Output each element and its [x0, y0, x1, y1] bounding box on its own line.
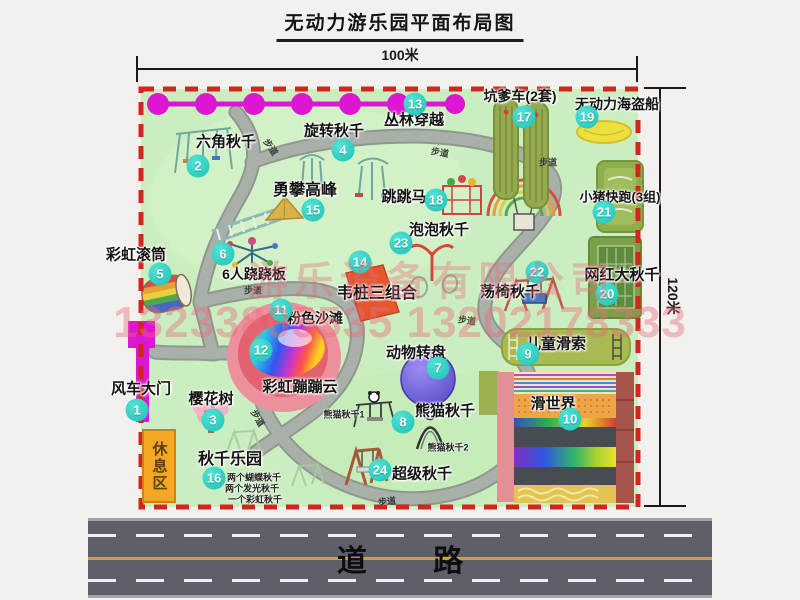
- road-label: 道 路: [337, 536, 463, 580]
- slide-world-icon: [479, 371, 634, 503]
- kids-zipline-icon: [502, 329, 630, 365]
- park-plan-page: 无动力游乐园平面布局图 100米 120米: [0, 0, 800, 600]
- big-swing-icon: [589, 237, 641, 318]
- height-dimension-label: 120米: [663, 277, 683, 314]
- pirate-ship-icon: [577, 121, 631, 143]
- animal-turntable-icon: [401, 352, 455, 406]
- page-title: 无动力游乐园平面布局图: [276, 8, 523, 42]
- rest-area: 休息区: [142, 429, 176, 503]
- road: 道 路: [88, 518, 712, 598]
- pink-beach-icon: [227, 302, 341, 412]
- width-dimension-label: 100米: [381, 45, 418, 65]
